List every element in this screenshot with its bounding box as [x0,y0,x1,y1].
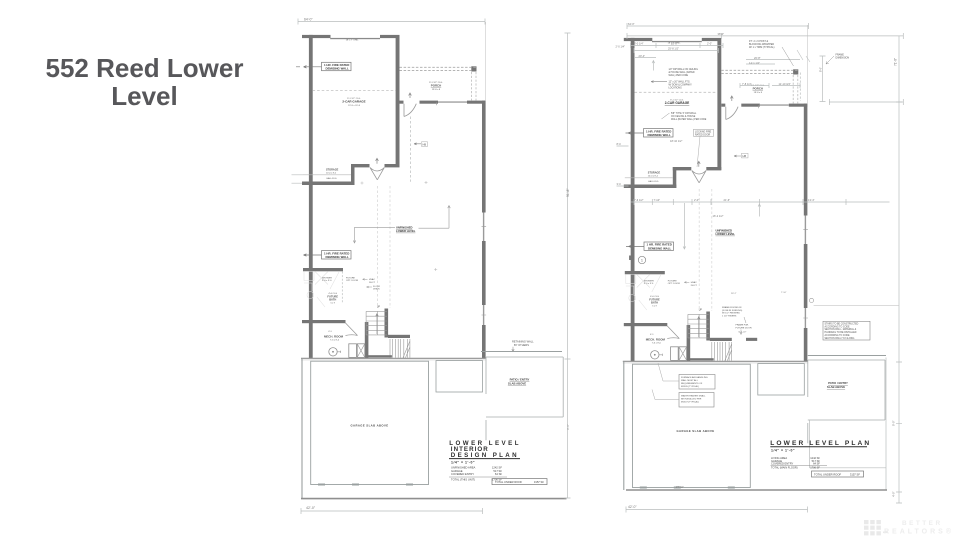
svg-text:5/8" TYPE 'X' DRYWALL: 5/8" TYPE 'X' DRYWALL [671,112,697,115]
svg-text:M1305 (TYPICAL): M1305 (TYPICAL) [681,385,699,388]
svg-text:COVERED ENTRY: COVERED ENTRY [771,461,794,465]
svg-text:WALL) PER CODE: WALL) PER CODE [669,74,689,77]
svg-text:1/2" DRYWALL ON CEILING: 1/2" DRYWALL ON CEILING [669,68,699,71]
svg-text:3157 SF: 3157 SF [850,472,861,476]
svg-text:8'-0 1/4": 8'-0 1/4" [634,42,644,46]
svg-text:7'-10": 7'-10" [654,198,661,202]
svg-text:W/ 1 x TRIM (TYPICAL): W/ 1 x TRIM (TYPICAL) [749,46,775,49]
svg-text:DEMISING WALL: DEMISING WALL [648,133,672,137]
svg-text:WALL MUST ALL: WALL MUST ALL [681,379,699,382]
svg-text:DEMISING WALL: DEMISING WALL [648,246,672,250]
svg-text:64 SF: 64 SF [813,461,820,465]
svg-text:16'-2 1/2": 16'-2 1/2" [713,214,724,218]
svg-text:ACCORDING TO CODE: ACCORDING TO CODE [825,325,851,328]
svg-text:19'-8 x 20'-8: 19'-8 x 20'-8 [348,105,361,107]
svg-text:7'-6 1/2": 7'-6 1/2" [634,198,644,202]
svg-text:64'-0": 64'-0" [304,17,313,21]
svg-text:FUTURE DOOR: FUTURE DOOR [736,327,752,329]
svg-text:18'-10 1/2": 18'-10 1/2" [670,139,682,143]
svg-text:64'-0": 64'-0" [628,22,635,26]
svg-text:1/4" = 1'-0": 1/4" = 1'-0" [451,460,475,464]
svg-text:BY OTHERS: BY OTHERS [514,343,529,347]
svg-text:8'-0": 8'-0" [819,67,823,72]
svg-text:38'-0": 38'-0" [718,32,725,36]
svg-text:DRAIN: DRAIN [373,288,380,291]
svg-text:71'-8": 71'-8" [894,58,898,66]
svg-text:1: 1 [641,258,643,262]
svg-text:14'-1 1/2": 14'-1 1/2" [749,61,760,65]
svg-text:HB: HB [743,154,747,158]
svg-text:GARAGE SLAB ABOVE: GARAGE SLAB ABOVE [350,424,388,428]
svg-text:FRAME ROOMS IN: FRAME ROOMS IN [722,306,742,309]
svg-text:26'-8": 26'-8" [754,56,761,60]
svg-text:20'-4": 20'-4" [639,54,646,58]
svg-text:11'-10 3/4": 11'-10 3/4" [779,82,791,86]
svg-text:1/4" = 1'-0": 1/4" = 1'-0" [771,449,795,453]
svg-text:1 1/2" RISERS: 1 1/2" RISERS [722,315,737,317]
svg-text:27'-10": 27'-10" [676,485,684,489]
svg-text:SLAB ABOVE: SLAB ABOVE [827,385,845,389]
svg-text:3157 SF: 3157 SF [534,480,545,484]
svg-text:25'-8 1/2": 25'-8 1/2" [668,47,679,51]
svg-text:12" x 20" WALL FTG.: 12" x 20" WALL FTG. [669,81,691,84]
svg-text:TOTAL (MAIN FLOOR): TOTAL (MAIN FLOOR) [771,466,798,470]
svg-text:SECTION R311 - MATERIAL &: SECTION R311 - MATERIAL & [825,328,857,331]
svg-text:2'-0": 2'-0" [694,198,699,202]
svg-text:9'-0": 9'-0" [892,420,896,426]
svg-text:BETTER: BETTER [902,520,943,527]
svg-text:WALL (RATED WALL) PER CODE: WALL (RATED WALL) PER CODE [671,118,707,121]
svg-text:ACCORDING TO CODE: ACCORDING TO CODE [825,334,851,337]
svg-text:2'-0": 2'-0" [707,42,712,46]
svg-text:21'-6": 21'-6" [724,198,731,202]
svg-text:DEMISING WALL: DEMISING WALL [326,255,350,259]
svg-text:W/ 1/2" FINISHED: W/ 1/2" FINISHED [722,313,740,315]
svg-text:25'-0": 25'-0" [671,42,678,46]
svg-text:M1307 (TYPICAL): M1307 (TYPICAL) [681,400,699,403]
svg-text:W/ DOW & COMPANY: W/ DOW & COMPANY [669,84,693,87]
svg-text:LOCATIONS: LOCATIONS [669,87,683,90]
svg-text:BE INSTALLED PER: BE INSTALLED PER [681,397,702,400]
svg-text:HANDRAIL TO BE INSTALLED: HANDRAIL TO BE INSTALLED [825,331,857,334]
svg-text:7'-8 1/4": 7'-8 1/4" [742,82,752,86]
svg-text:DESIGN PLAN: DESIGN PLAN [451,452,519,459]
svg-text:LOCKING FIRE: LOCKING FIRE [695,131,712,133]
svg-text:13'-4": 13'-4" [808,198,815,202]
svg-text:SLAB ABOVE: SLAB ABOVE [508,382,526,386]
svg-text:UNFINISHED: UNFINISHED [396,225,412,229]
svg-text:LOWER LEVEL: LOWER LEVEL [716,232,736,236]
svg-text:RATED DOOR: RATED DOOR [695,133,710,136]
svg-text:2-CAR GARAGE: 2-CAR GARAGE [665,101,690,105]
svg-text:9'-0": 9'-0" [566,424,570,430]
svg-text:2-CAR GARAGE: 2-CAR GARAGE [342,100,365,104]
svg-text:4'-0": 4'-0" [892,491,896,497]
svg-text:FRAME FUR.: FRAME FUR. [736,324,750,327]
svg-text:SECTION R311.7.8.3 & R311: SECTION R311.7.8.3 & R311 [825,338,856,340]
svg-text:TOTAL (THIS UNIT): TOTAL (THIS UNIT) [451,477,475,481]
svg-text:8'-2 1/2": 8'-2 1/2" [739,331,747,333]
svg-text:STAIRS TO BE CONSTRUCTED: STAIRS TO BE CONSTRUCTED [825,322,859,325]
svg-text:DEMISING WALL: DEMISING WALL [326,67,350,71]
svg-text:REALTORS®: REALTORS® [884,528,954,536]
svg-text:1706 SF: 1706 SF [810,466,820,470]
svg-text:UNFINISHED: UNFINISHED [716,228,732,232]
svg-text:LOWER LEVEL PLAN: LOWER LEVEL PLAN [770,440,871,447]
svg-text:28'-2": 28'-2" [731,293,737,295]
svg-text:WATER HEATER SHALL: WATER HEATER SHALL [681,394,706,397]
svg-text:& HOUSE WALL (RATED: & HOUSE WALL (RATED [669,71,695,74]
svg-text:GARAGE SLAB ABOVE: GARAGE SLAB ABOVE [676,429,714,433]
svg-text:8'-0: 8'-0 [617,142,622,146]
svg-text:HB: HB [423,142,427,146]
svg-text:REQUIREMENTS OF: REQUIREMENTS OF [681,383,703,385]
svg-text:3'-0: 3'-0 [617,182,622,186]
svg-text:7'-10": 7'-10" [781,292,787,294]
svg-text:ON CEILING & HOUSE: ON CEILING & HOUSE [671,116,696,118]
svg-text:DIMENSION: DIMENSION [836,56,850,59]
svg-text:91'-8": 91'-8" [566,188,570,197]
svg-text:TOTAL UNDER ROOF: TOTAL UNDER ROOF [495,480,522,484]
svg-text:64 SF: 64 SF [495,472,503,476]
svg-text:2'-0 1/4": 2'-0 1/4" [616,45,626,49]
svg-text:TOTAL UNDER ROOF: TOTAL UNDER ROOF [814,472,841,476]
svg-text:(N. BE IN FURLING): (N. BE IN FURLING) [722,310,742,312]
svg-text:42'-0": 42'-0" [628,505,637,509]
svg-text:COVERED ENTRY: COVERED ENTRY [451,472,474,476]
svg-text:42'-0": 42'-0" [306,506,316,510]
svg-text:FURNACE AIR HANDLING: FURNACE AIR HANDLING [681,376,708,379]
svg-text:LOWER LEVEL: LOWER LEVEL [396,229,416,233]
